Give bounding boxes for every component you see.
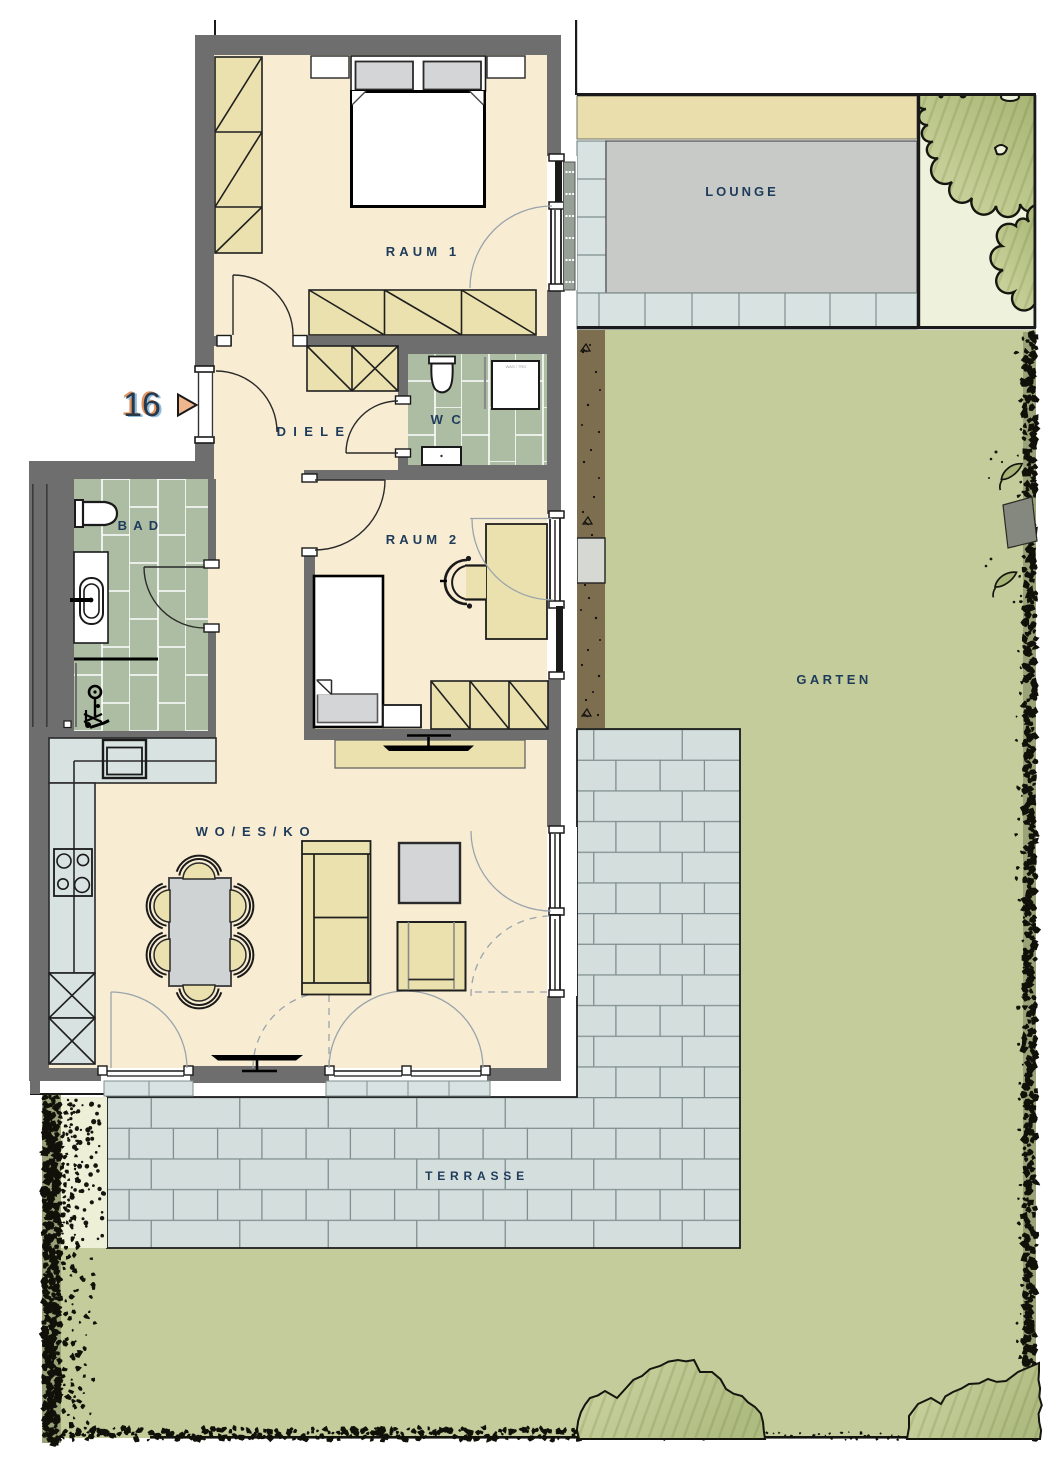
svg-text:GARTEN: GARTEN — [796, 672, 871, 687]
svg-text:WC: WC — [431, 412, 470, 427]
svg-text:LOUNGE: LOUNGE — [705, 184, 779, 199]
svg-text:16: 16 — [123, 386, 161, 424]
svg-text:RAUM 1: RAUM 1 — [386, 244, 460, 259]
svg-text:RAUM 2: RAUM 2 — [386, 532, 460, 547]
svg-text:WO/ES/KO: WO/ES/KO — [196, 824, 317, 839]
svg-text:DIELE: DIELE — [277, 424, 352, 439]
svg-text:TERRASSE: TERRASSE — [425, 1169, 529, 1183]
svg-text:WAS / TRO: WAS / TRO — [506, 364, 527, 369]
svg-text:BAD: BAD — [118, 518, 165, 533]
